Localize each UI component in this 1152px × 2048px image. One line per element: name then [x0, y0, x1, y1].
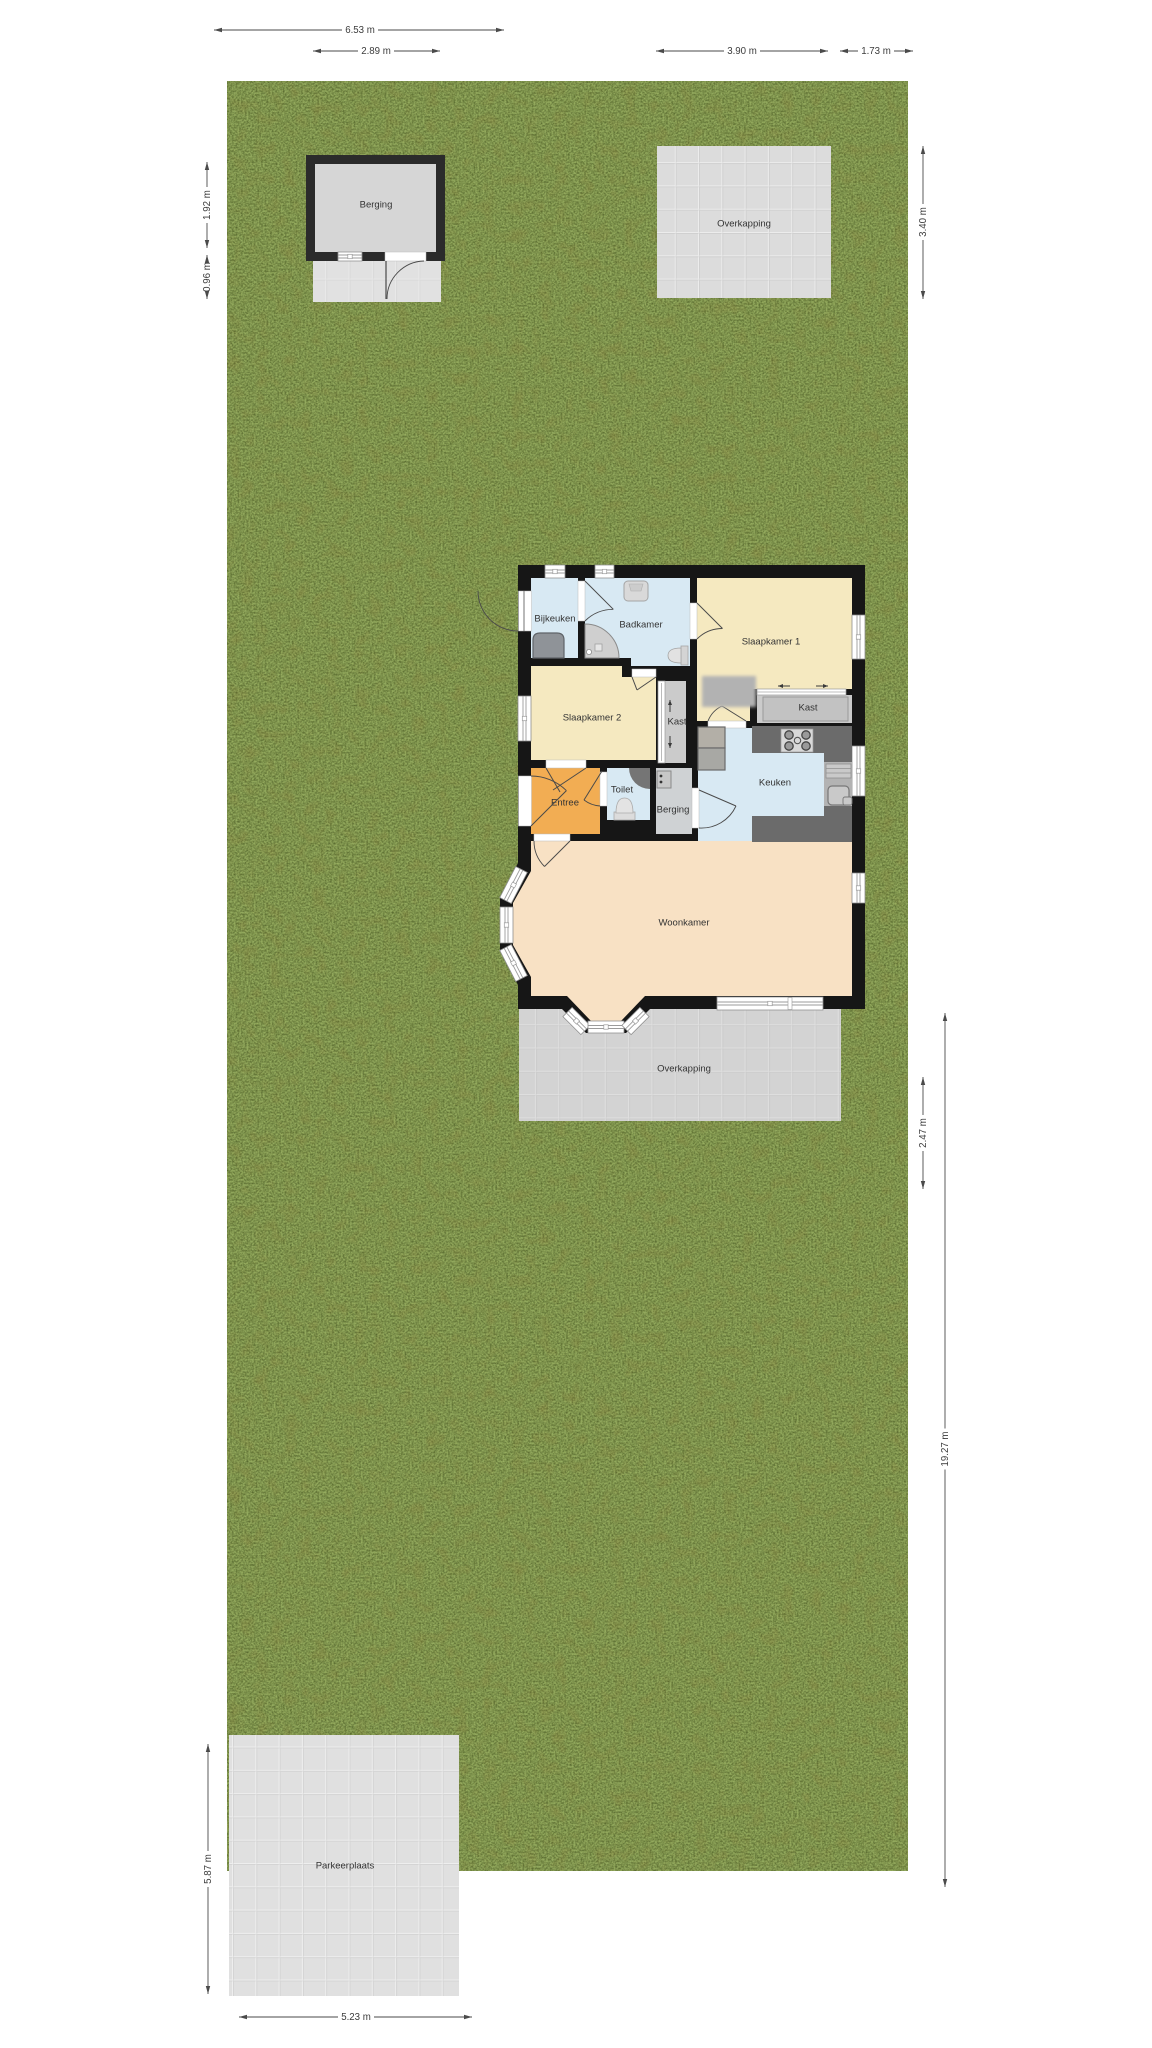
svg-text:19.27 m: 19.27 m — [940, 1431, 951, 1466]
svg-text:Badkamer: Badkamer — [619, 620, 662, 631]
svg-text:Toilet: Toilet — [611, 785, 634, 796]
svg-text:3.90 m: 3.90 m — [727, 46, 757, 57]
svg-text:Bijkeuken: Bijkeuken — [534, 614, 575, 625]
svg-text:Slaapkamer 1: Slaapkamer 1 — [742, 637, 801, 648]
svg-text:5.87 m: 5.87 m — [203, 1854, 214, 1884]
svg-text:Berging: Berging — [657, 805, 690, 816]
svg-text:3.40 m: 3.40 m — [918, 207, 929, 237]
svg-text:2.89 m: 2.89 m — [361, 46, 391, 57]
svg-text:1.73 m: 1.73 m — [861, 46, 891, 57]
svg-text:1.92 m: 1.92 m — [202, 190, 213, 220]
svg-text:6.53 m: 6.53 m — [345, 25, 375, 36]
svg-text:0.96 m: 0.96 m — [202, 262, 213, 292]
svg-text:Berging: Berging — [360, 200, 393, 211]
svg-text:Overkapping: Overkapping — [657, 1064, 711, 1075]
svg-text:Parkeerplaats: Parkeerplaats — [316, 1861, 375, 1872]
svg-text:2.47 m: 2.47 m — [918, 1118, 929, 1148]
svg-text:Entree: Entree — [551, 798, 579, 809]
svg-text:Slaapkamer 2: Slaapkamer 2 — [563, 713, 622, 724]
svg-text:5.23 m: 5.23 m — [341, 2012, 371, 2023]
svg-text:Kast: Kast — [667, 717, 686, 728]
svg-text:Overkapping: Overkapping — [717, 219, 771, 230]
svg-text:Keuken: Keuken — [759, 778, 791, 789]
svg-text:Woonkamer: Woonkamer — [658, 918, 709, 929]
svg-text:Kast: Kast — [798, 703, 817, 714]
